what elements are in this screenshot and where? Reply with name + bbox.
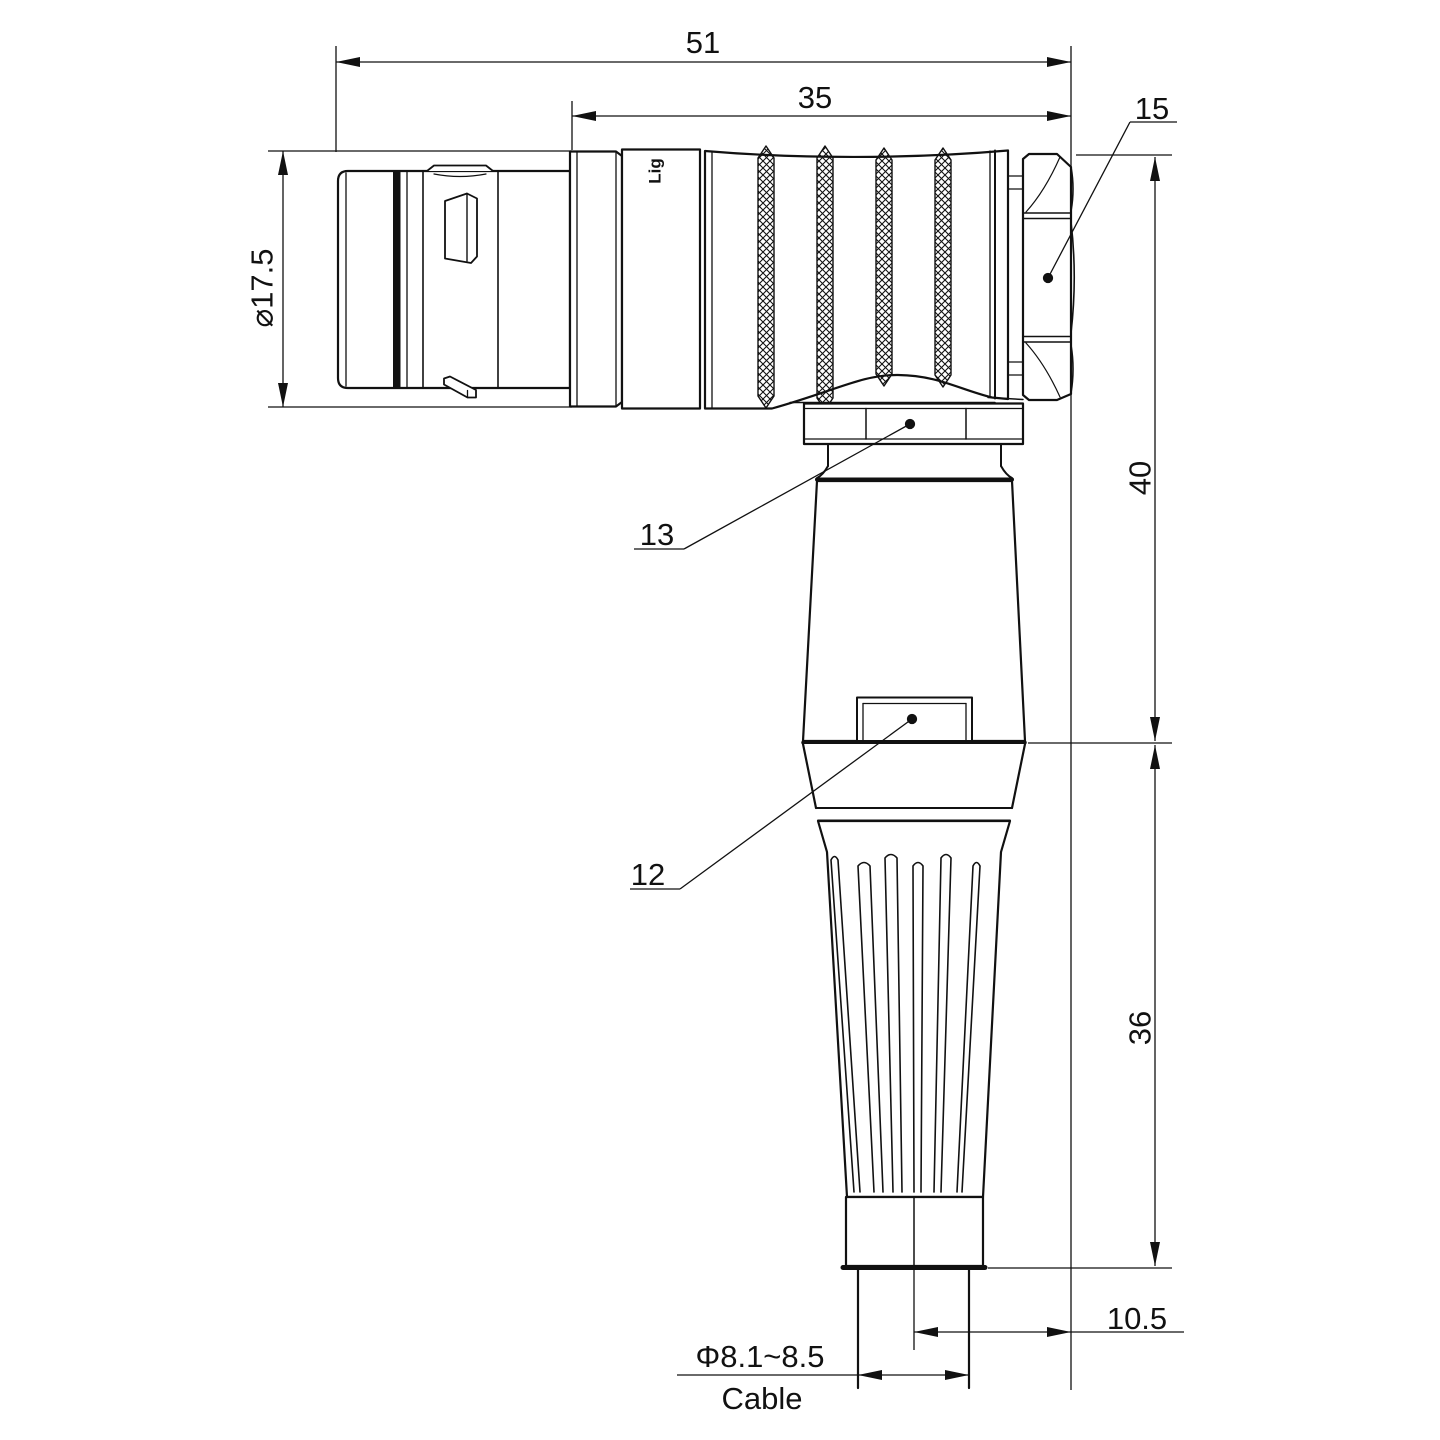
dim-cable-diameter-label: Φ8.1~8.5 — [695, 1339, 824, 1374]
knurl-band-4 — [935, 148, 951, 387]
dim-cable-offset-label: 10.5 — [1107, 1301, 1167, 1336]
callout-12-label: 12 — [631, 857, 665, 892]
grip-section — [705, 151, 1023, 409]
knurl-band-3 — [876, 148, 892, 386]
barrel-collar — [570, 152, 622, 407]
connector-body — [338, 146, 1074, 1388]
sleeve-dark-band — [393, 172, 401, 389]
knurl-band-2 — [817, 146, 833, 410]
connector-technical-drawing: Lightany — [0, 0, 1440, 1440]
callout-15-label: 15 — [1135, 91, 1169, 126]
strain-relief-boot — [818, 821, 1010, 1197]
dim-overall-length-label: 51 — [686, 25, 720, 60]
end-cap — [843, 1197, 985, 1268]
body-print-text: Lig — [646, 158, 665, 184]
neck — [817, 444, 1012, 480]
callout-13-dot — [906, 420, 915, 429]
callout-15-dot — [1044, 274, 1053, 283]
mid-section — [622, 150, 700, 409]
latch-window — [445, 194, 477, 264]
dim-height-lower-label: 36 — [1123, 1011, 1158, 1045]
dim-front-diameter-label: ⌀17.5 — [245, 249, 280, 328]
knurl-band-1 — [758, 146, 774, 408]
lower-body — [803, 744, 1025, 821]
dim-height-upper-label: 40 — [1123, 461, 1158, 495]
sleeve-top-bump — [427, 166, 493, 172]
callout-12-dot — [908, 715, 917, 724]
callout-13-label: 13 — [640, 517, 674, 552]
drawing-canvas: Lightany — [0, 0, 1440, 1440]
dim-grip-length-label: 35 — [798, 80, 832, 115]
front-release-sleeve — [338, 166, 570, 398]
upper-body — [803, 481, 1025, 743]
cable-label: Cable — [722, 1381, 803, 1416]
